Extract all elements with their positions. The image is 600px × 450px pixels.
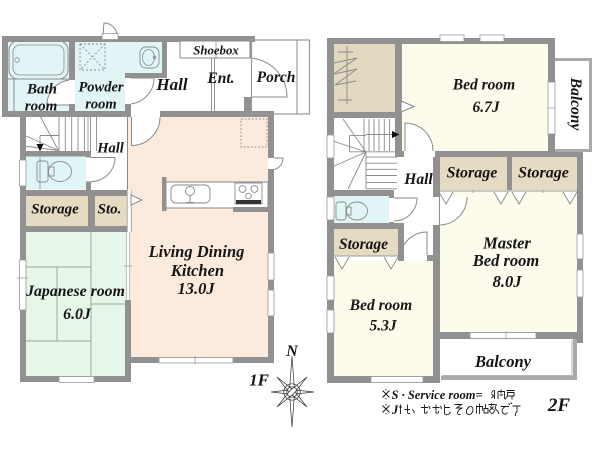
svg-text:Bed room: Bed room bbox=[349, 297, 412, 314]
svg-text:8.0J: 8.0J bbox=[493, 272, 523, 291]
svg-text:6.0J: 6.0J bbox=[63, 306, 92, 323]
svg-text:Storage: Storage bbox=[339, 236, 388, 253]
svg-text:Living Dining: Living Dining bbox=[148, 242, 245, 261]
svg-text:Sto.: Sto. bbox=[98, 202, 122, 218]
svg-text:Hall: Hall bbox=[96, 141, 124, 157]
svg-text:Powder: Powder bbox=[78, 80, 123, 96]
svg-text:13.0J: 13.0J bbox=[177, 279, 215, 298]
svg-text:Storage: Storage bbox=[31, 202, 79, 218]
svg-text:Balcony: Balcony bbox=[474, 352, 532, 371]
svg-text:Storage: Storage bbox=[447, 165, 498, 182]
svg-text:room: room bbox=[25, 99, 58, 115]
svg-text:Ent.: Ent. bbox=[206, 70, 234, 87]
svg-text:Porch: Porch bbox=[257, 69, 296, 86]
svg-text:6.7J: 6.7J bbox=[472, 99, 500, 116]
svg-text:1F: 1F bbox=[249, 371, 270, 390]
svg-text:Master: Master bbox=[482, 234, 531, 253]
svg-text:room: room bbox=[85, 97, 116, 113]
svg-text:Bed room: Bed room bbox=[452, 77, 515, 94]
svg-text:J: J bbox=[391, 403, 399, 417]
svg-text:Hall: Hall bbox=[155, 75, 187, 94]
svg-text:Bed room: Bed room bbox=[472, 251, 540, 270]
svg-text:Japanese room: Japanese room bbox=[25, 283, 125, 300]
svg-text:2F: 2F bbox=[547, 395, 571, 416]
svg-text:Shoebox: Shoebox bbox=[193, 44, 239, 58]
svg-text:Kitchen: Kitchen bbox=[170, 261, 224, 280]
svg-text:N: N bbox=[285, 343, 299, 360]
svg-text:Storage: Storage bbox=[518, 165, 569, 182]
svg-text:Balcony: Balcony bbox=[567, 77, 584, 131]
svg-text:5.3J: 5.3J bbox=[369, 318, 397, 335]
svg-text:S · Service room=: S · Service room= bbox=[392, 388, 483, 402]
svg-text:Bath: Bath bbox=[26, 82, 57, 98]
svg-text:Hall: Hall bbox=[403, 171, 433, 188]
